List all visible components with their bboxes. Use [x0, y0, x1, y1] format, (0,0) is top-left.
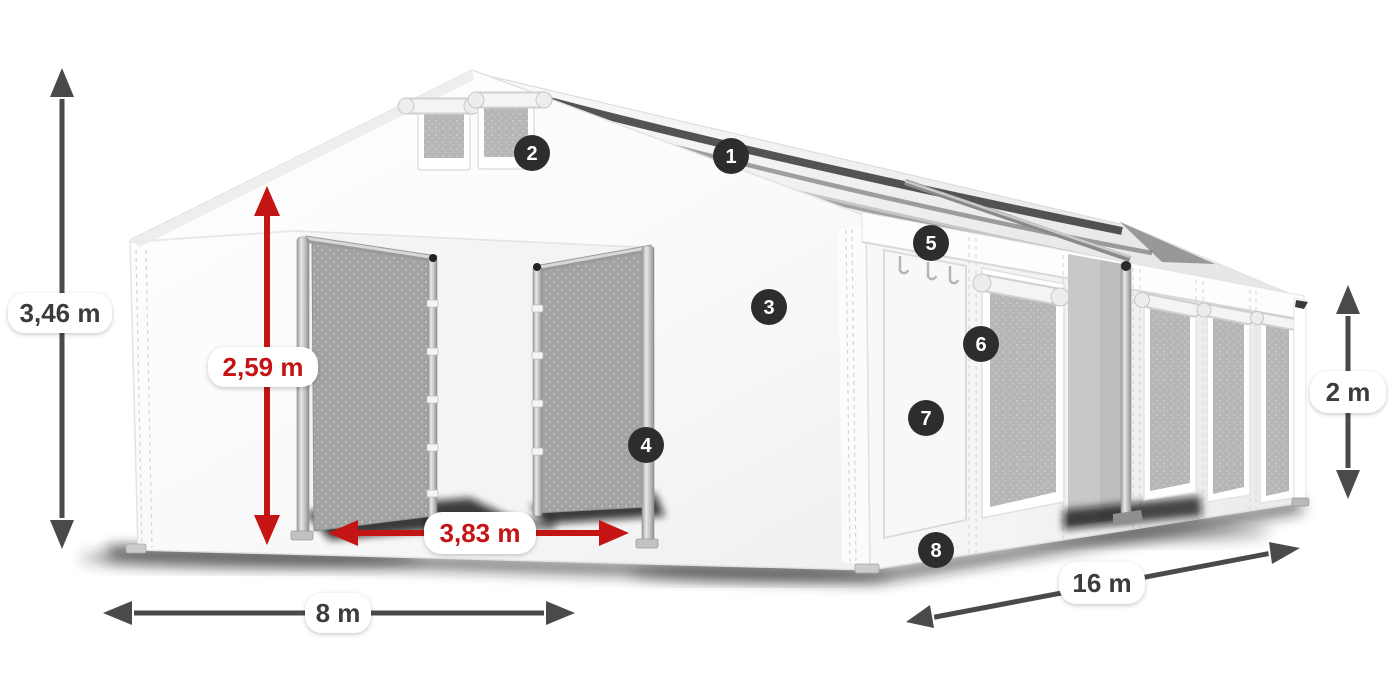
callout-4-entrance: 4: [628, 427, 664, 463]
side-window-2: [1135, 293, 1197, 501]
callout-7-number: 7: [920, 408, 931, 430]
dimension-front-width: 8 m: [103, 593, 575, 633]
dimension-label-side-length: 16 m: [1072, 568, 1131, 598]
front-right-foot: [855, 564, 879, 573]
callout-8-groundbar: 8: [918, 532, 954, 568]
callout-6-side-window: 6: [963, 326, 999, 362]
callout-5-eave: 5: [913, 225, 949, 261]
callout-6-number: 6: [975, 334, 986, 356]
far-corner: [1292, 298, 1309, 506]
callout-1-roof: 1: [713, 138, 749, 174]
callout-7-side-door: 7: [908, 400, 944, 436]
dimension-label-entrance-width: 3,83 m: [440, 518, 521, 548]
side-door-panel: [884, 250, 966, 538]
dimension-label-entrance-height: 2,59 m: [223, 352, 304, 382]
front-left-foot: [126, 544, 146, 553]
side-middle-pole: [1121, 262, 1131, 520]
dimension-label-side-height: 2 m: [1326, 377, 1371, 407]
callout-8-number: 8: [930, 540, 941, 562]
callout-3-number: 3: [763, 297, 774, 319]
dimension-label-total-height: 3,46 m: [20, 298, 101, 328]
entrance-curtain-left: [305, 238, 438, 531]
callout-3-front-wall: 3: [751, 289, 787, 325]
dimension-total-height: 3,46 m: [8, 68, 112, 549]
tent-illustration: 3,46 m 2,59 m 3,83 m 8 m: [0, 0, 1400, 700]
side-window-1: [973, 268, 1069, 518]
front-entrance-opening: [291, 233, 665, 548]
callout-1-number: 1: [725, 146, 736, 168]
dimension-side-height: 2 m: [1310, 285, 1386, 499]
entrance-curtain-right: [532, 247, 652, 516]
callout-2-number: 2: [526, 143, 537, 165]
callout-4-number: 4: [640, 435, 652, 457]
dimension-label-front-width: 8 m: [316, 598, 361, 628]
callout-5-number: 5: [925, 233, 936, 255]
callout-2-gable-window: 2: [514, 135, 550, 171]
tent-dimensions-diagram: 3,46 m 2,59 m 3,83 m 8 m: [0, 0, 1400, 700]
